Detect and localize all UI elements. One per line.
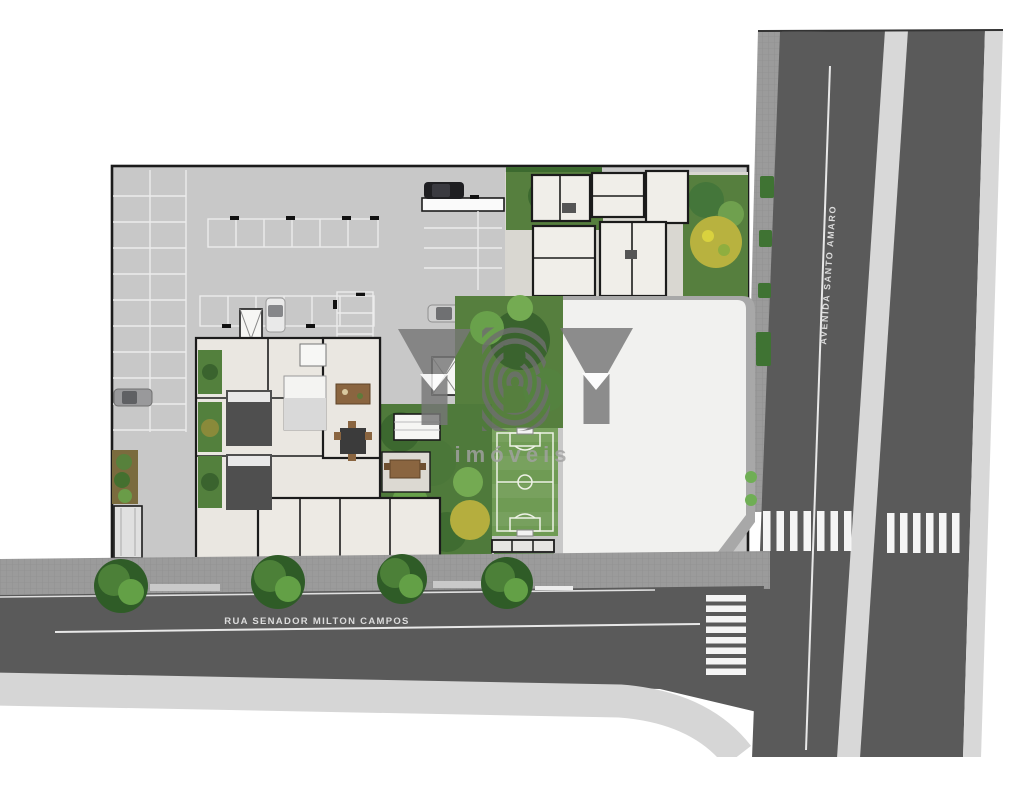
watermark-letter-b: B [472, 301, 559, 466]
northeast-zone [505, 167, 748, 300]
bathroom-tiles [300, 344, 326, 366]
rua-light-band-2 [433, 581, 481, 588]
yellow-tree-highlight [702, 230, 714, 242]
rua-street-label: RUA SENADOR MILTON CAMPOS [224, 616, 409, 627]
tree-sidewalk-1 [94, 559, 148, 613]
field-bench [492, 540, 554, 552]
tree-sidewalk-3 [377, 554, 427, 604]
svg-text:B: B [472, 301, 559, 466]
bed-3-light [284, 376, 326, 430]
avenue-top-edge [758, 30, 1003, 31]
terrace-table [384, 460, 426, 478]
site-plan-canvas: AVENIDA SANTO AMARO [0, 0, 1024, 788]
car-white-center [266, 298, 285, 332]
watermark-word: imóveis [455, 442, 572, 467]
pocket-bush-2 [201, 419, 219, 437]
bed-1 [226, 390, 272, 446]
kitchen-table [336, 384, 370, 404]
tree-sidewalk-2 [251, 555, 305, 609]
planter-west [112, 450, 138, 504]
tree-sidewalk-4 [481, 557, 533, 609]
rua-light-band-1 [150, 584, 220, 591]
car-dark-top [424, 182, 464, 199]
bed-2 [226, 454, 272, 510]
yellow-tree-north [690, 216, 742, 268]
pocket-bush-1 [202, 364, 218, 380]
yellow-bush-court [450, 500, 490, 540]
bottom-white-margin [0, 757, 1024, 788]
goal-south [517, 530, 533, 536]
car-gray-west [114, 389, 152, 406]
tree-court-9 [453, 467, 483, 497]
unit-plans-north [532, 171, 688, 296]
pocket-bush-3 [201, 473, 219, 491]
rua-light-band-3 [535, 586, 573, 590]
driveway-ramp [114, 506, 142, 558]
avenue-santo-amaro: AVENIDA SANTO AMARO [746, 30, 1003, 758]
site-plan-page: AVENIDA SANTO AMARO [0, 0, 1024, 788]
yellow-tree-shade [718, 244, 730, 256]
